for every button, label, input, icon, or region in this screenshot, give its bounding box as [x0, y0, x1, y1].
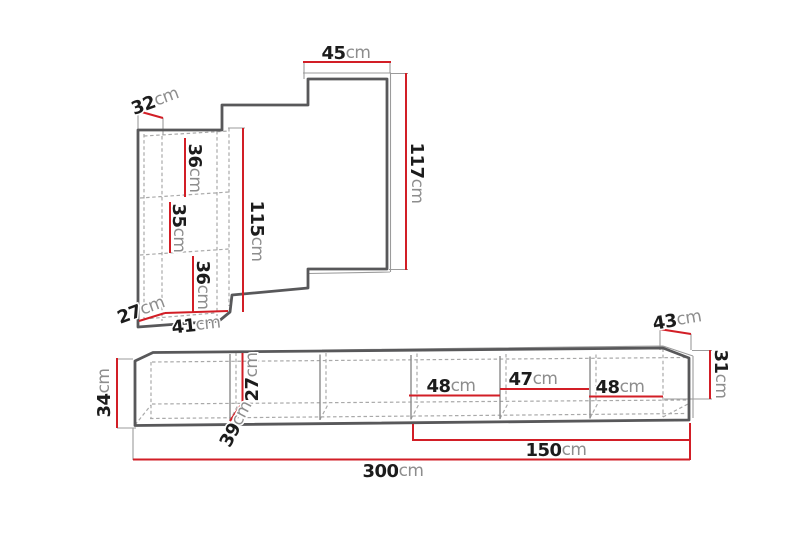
dim-wall-shelf-bottom-36cm: 36cm [193, 261, 214, 310]
dim-bench-compartment3-48cm: 48cm [596, 377, 645, 398]
diagram-canvas: 45cm 32cm 117cm 115cm 36cm 35cm 36cm 27c… [0, 0, 800, 533]
dim-bench-width-total-300cm: 300cm [363, 461, 424, 482]
dim-bench-height-right-31cm: 31cm [711, 350, 732, 399]
dim-bench-height-left-34cm: 34cm [94, 369, 115, 418]
dim-wall-bottom-depth-27cm: 27cm [114, 292, 167, 328]
wall-unit-thin-edges [303, 73, 391, 274]
dim-bench-inner-height-27cm: 27cm [242, 353, 263, 402]
dim-wall-bottom-width-41cm: 41cm [171, 312, 222, 338]
dim-wall-top-width-45cm: 45cm [322, 43, 371, 64]
dim-bench-top-depth-43cm: 43cm [651, 306, 703, 334]
wall-unit-figure: 45cm 32cm 117cm 115cm 36cm 35cm 36cm 27c… [114, 43, 427, 339]
dim-bench-width-right-150cm: 150cm [526, 440, 587, 461]
dim-wall-height-115cm: 115cm [247, 201, 268, 262]
dim-bench-compartment2-47cm: 47cm [509, 369, 558, 390]
dim-wall-top-depth-32cm: 32cm [128, 83, 181, 119]
dim-bench-compartment1-48cm: 48cm [427, 376, 476, 397]
dim-wall-shelf-middle-35cm: 35cm [169, 204, 190, 253]
dim-wall-shelf-top-36cm: 36cm [185, 144, 206, 193]
dim-wall-height-117cm: 117cm [407, 143, 428, 204]
furniture-dimension-diagram: 45cm 32cm 117cm 115cm 36cm 35cm 36cm 27c… [0, 0, 800, 533]
